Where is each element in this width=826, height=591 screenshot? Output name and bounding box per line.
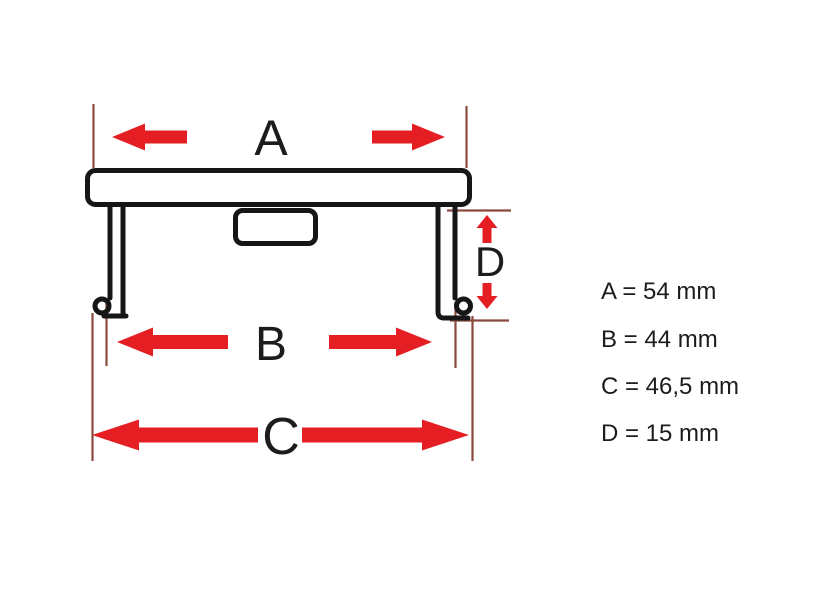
dim-a-label: A	[254, 113, 287, 163]
dimension-legend: A = 54 mm B = 44 mm C = 46,5 mm D = 15 m…	[601, 0, 821, 591]
cap-body	[88, 171, 470, 205]
dim-c-arrow-left-icon	[92, 420, 258, 451]
dim-b-arrow-right-icon	[329, 328, 432, 357]
legend-line-c: C = 46,5 mm	[601, 375, 739, 399]
dim-a-arrow-left-icon	[112, 124, 187, 151]
dim-c-label: C	[262, 411, 300, 463]
dim-a-arrow-right-icon	[372, 124, 445, 151]
left-leg-hook	[95, 299, 109, 313]
dim-b-arrow-left-icon	[117, 328, 228, 357]
dim-d-label: D	[475, 241, 505, 283]
dim-c-arrow-right-icon	[302, 420, 469, 451]
dimension-diagram-page: A B C D A = 54 mm B = 44 mm C = 46,5 mm …	[0, 0, 826, 591]
dim-d-arrow-down-icon	[477, 283, 498, 309]
legend-line-d: D = 15 mm	[601, 422, 719, 446]
cap-left-leg	[95, 206, 126, 316]
legend-line-b: B = 44 mm	[601, 328, 718, 352]
reference-lines	[93, 104, 512, 461]
cap-right-leg	[438, 206, 471, 318]
dim-b-label: B	[255, 321, 287, 369]
cap-outline	[88, 171, 471, 319]
cap-center-tab	[236, 211, 316, 244]
right-leg-hook	[457, 299, 471, 313]
legend-line-a: A = 54 mm	[601, 280, 716, 304]
